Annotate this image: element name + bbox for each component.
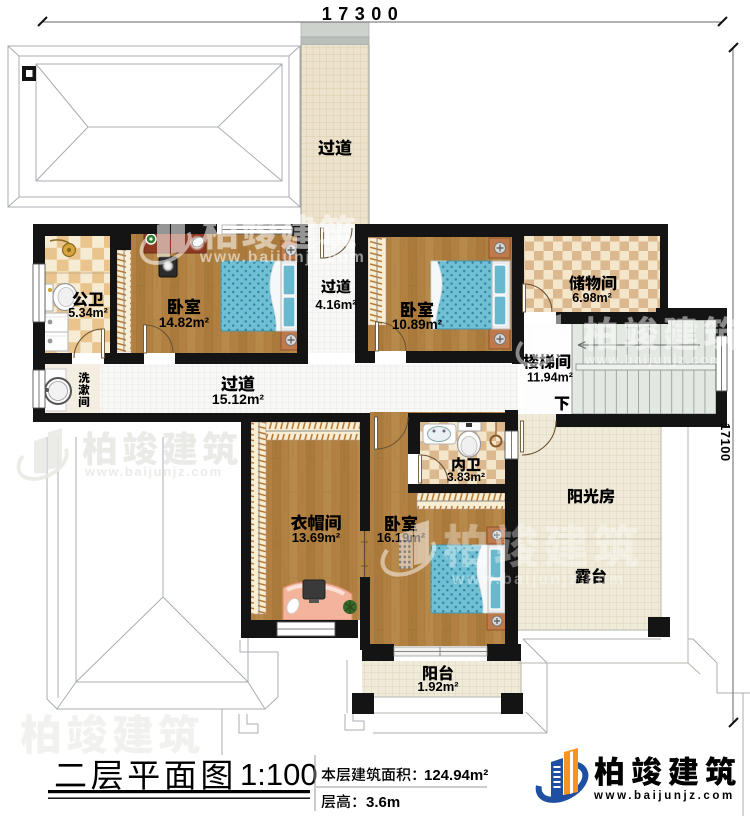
svg-text:www.baijunjz.com: www.baijunjz.com [593,790,735,802]
svg-text:13.69m²: 13.69m² [292,530,341,545]
svg-text:3.6m: 3.6m [366,794,400,811]
svg-text:4.16m²: 4.16m² [315,297,357,312]
svg-text:5.34m²: 5.34m² [68,306,108,320]
svg-text:10.89m²: 10.89m² [392,317,443,332]
svg-text:124.94m²: 124.94m² [424,767,488,784]
svg-text:17300: 17300 [322,4,405,24]
svg-text:www.baijunjz.com: www.baijunjz.com [451,571,625,588]
svg-text:1:100: 1:100 [240,757,318,792]
svg-text:15.12m²: 15.12m² [212,391,264,407]
svg-text:1.92m²: 1.92m² [417,679,459,694]
svg-text:11.94m²: 11.94m² [527,371,573,385]
svg-text:www.baijunjz.com: www.baijunjz.com [199,249,366,266]
svg-text:17100: 17100 [718,423,733,462]
svg-text:www.baijunjz.com: www.baijunjz.com [584,352,723,367]
svg-text:14.82m²: 14.82m² [159,315,210,330]
svg-text:6.98m²: 6.98m² [572,291,612,305]
svg-text:3.83m²: 3.83m² [447,470,485,484]
svg-text:www.baijunjz.com: www.baijunjz.com [84,464,223,479]
